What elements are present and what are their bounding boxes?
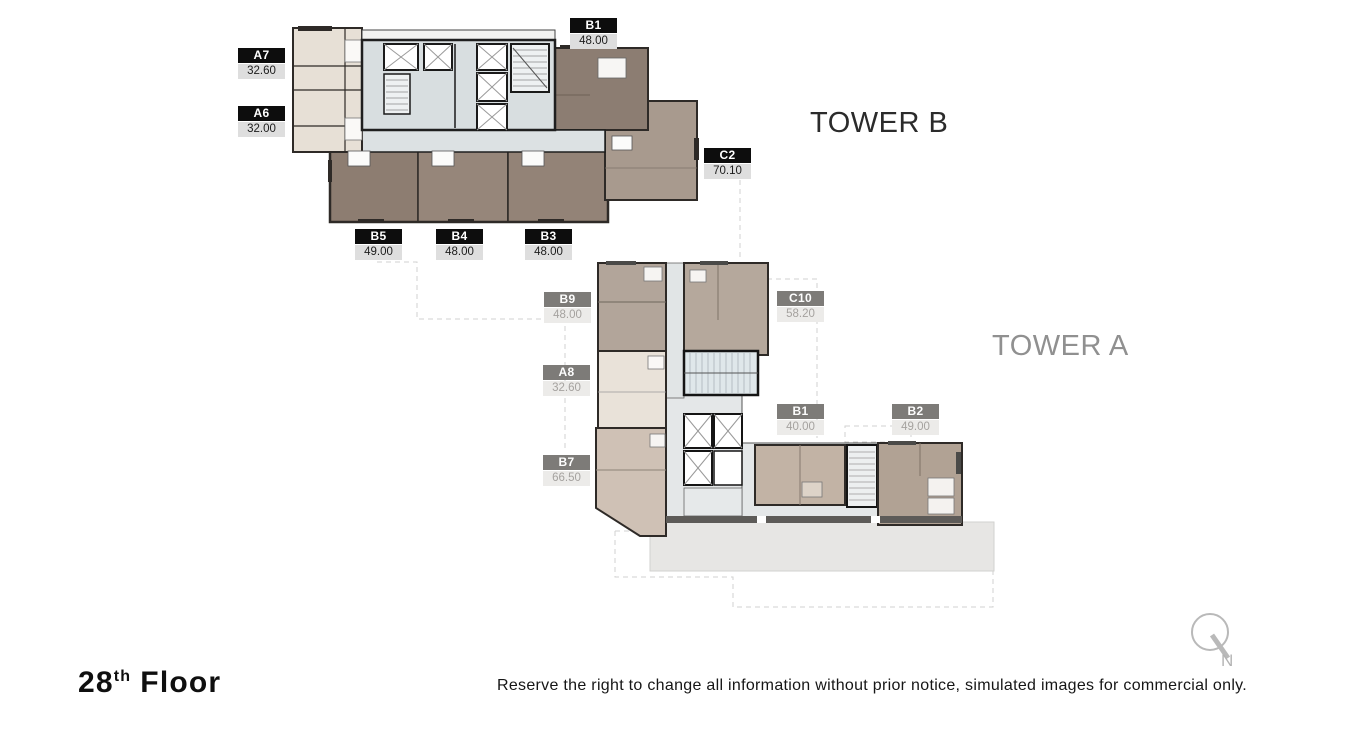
unit-label-a8: A8 32.60 [543,365,590,396]
floor-ordinal-suffix: th [114,668,132,685]
unit-area: 32.00 [238,122,285,137]
stairs-towera [684,351,758,395]
unit-id: B2 [892,404,939,419]
floorplan-page: TOWER B TOWER A A7 32.60 A6 32.00 B1 48.… [0,0,1352,738]
unit-id: B9 [544,292,591,307]
unit-b4-shape [418,148,508,222]
unit-id: A6 [238,106,285,121]
unit-label-b4: B4 48.00 [436,229,483,260]
unit-label-b1-tower-a: B1 40.00 [777,404,824,435]
unit-area: 70.10 [704,164,751,179]
unit-area: 48.00 [436,245,483,260]
unit-label-b1-tower-b: B1 48.00 [570,18,617,49]
unit-id: B7 [543,455,590,470]
unit-id: B1 [570,18,617,33]
unit-id: A8 [543,365,590,380]
compass-north-label: N [1221,651,1233,671]
unit-label-b5: B5 49.00 [355,229,402,260]
wing-stair [847,445,877,507]
disclaimer-text: Reserve the right to change all informat… [497,677,1247,695]
corridor-towerb [362,130,605,152]
unit-label-a7: A7 32.60 [238,48,285,79]
unit-label-a6: A6 32.00 [238,106,285,137]
unit-id: B5 [355,229,402,244]
unit-area: 49.00 [892,420,939,435]
unit-label-b9: B9 48.00 [544,292,591,323]
unit-label-c2: C2 70.10 [704,148,751,179]
unit-id: B1 [777,404,824,419]
tower-b-title: TOWER B [810,107,948,140]
tower-b-plan [293,26,699,223]
podium-shape [650,522,994,571]
elevator-shafts-towera [684,414,742,516]
floor-title: 28thFloor [78,666,221,700]
unit-area: 48.00 [570,34,617,49]
unit-area: 32.60 [238,64,285,79]
unit-area: 66.50 [543,471,590,486]
floorplan-canvas [0,0,1352,738]
unit-label-b3: B3 48.00 [525,229,572,260]
unit-label-c10: C10 58.20 [777,291,824,322]
floor-word: Floor [140,666,221,699]
unit-label-b7: B7 66.50 [543,455,590,486]
unit-area: 40.00 [777,420,824,435]
unit-id: C10 [777,291,824,306]
unit-id: C2 [704,148,751,163]
tower-a-title: TOWER A [992,330,1129,363]
unit-area: 48.00 [544,308,591,323]
unit-area: 32.60 [543,381,590,396]
unit-id: B4 [436,229,483,244]
unit-area: 49.00 [355,245,402,260]
unit-id: A7 [238,48,285,63]
unit-id: B3 [525,229,572,244]
unit-area: 58.20 [777,307,824,322]
floor-number: 28 [78,666,114,699]
unit-b5-shape [330,148,418,222]
corridor-towera [666,263,684,398]
unit-label-b2: B2 49.00 [892,404,939,435]
unit-area: 48.00 [525,245,572,260]
